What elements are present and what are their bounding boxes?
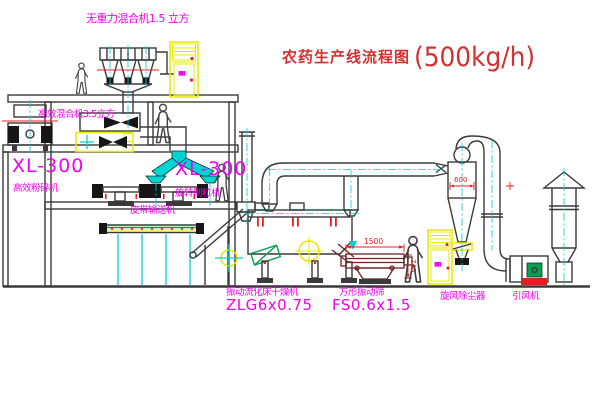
screen-dimension-lines <box>346 244 412 278</box>
label-dryer-model: ZLG6x0.75 <box>226 298 313 313</box>
dimension-screen-length: 1500 <box>364 238 383 246</box>
dimension-screen-height: 745 <box>409 259 416 272</box>
label-screen-model: FS0.6x1.5 <box>332 298 411 313</box>
label-second-mixer: 高效混合机3.5立方 <box>38 110 115 120</box>
page-title: 农药生产线流程图 (500kg/h) <box>282 44 546 71</box>
label-granulator-model: XL-300 <box>175 160 247 179</box>
induced-draft-fan <box>506 256 548 285</box>
vibrating-screen <box>332 241 412 284</box>
inclined-conveyor <box>190 209 247 285</box>
label-belt-conveyor: 皮带输送机 <box>130 206 175 216</box>
label-pulverizer-name: 高效粉碎机 <box>13 184 58 194</box>
label-top-mixer: 无重力混合机1.5 立方 <box>86 13 189 24</box>
control-cabinet-right <box>428 230 452 284</box>
fluid-bed-dryer <box>248 203 357 283</box>
dimension-cyclone: 600 <box>454 177 467 184</box>
cabinet-top-panel-text: ▮▮▮ <box>178 71 185 77</box>
feed-arrow <box>349 241 357 250</box>
datum-crosshair <box>215 244 243 272</box>
title-capacity: (500kg/h) <box>414 44 535 71</box>
dryer-clamps <box>257 218 337 227</box>
title-text: 农药生产线流程图 <box>282 50 410 65</box>
top-floor-mixer <box>97 48 174 113</box>
flow-diagram-canvas: 农药生产线流程图 (500kg/h) 无重力混合机1.5 立方 高效混合机3.5… <box>0 0 600 403</box>
label-cyclone-name: 旋风除尘器 <box>440 292 485 302</box>
label-fan-name: 引风机 <box>512 292 539 302</box>
belt-conveyor <box>99 223 204 285</box>
label-granulator-name: 旋转制粒机 <box>175 189 220 199</box>
person-figure-1 <box>75 63 87 93</box>
label-pulverizer-model: XL-300 <box>12 157 84 176</box>
cabinet-right-panel-text: ▮▮▮ <box>434 262 441 268</box>
cyclone-separator <box>448 136 514 271</box>
